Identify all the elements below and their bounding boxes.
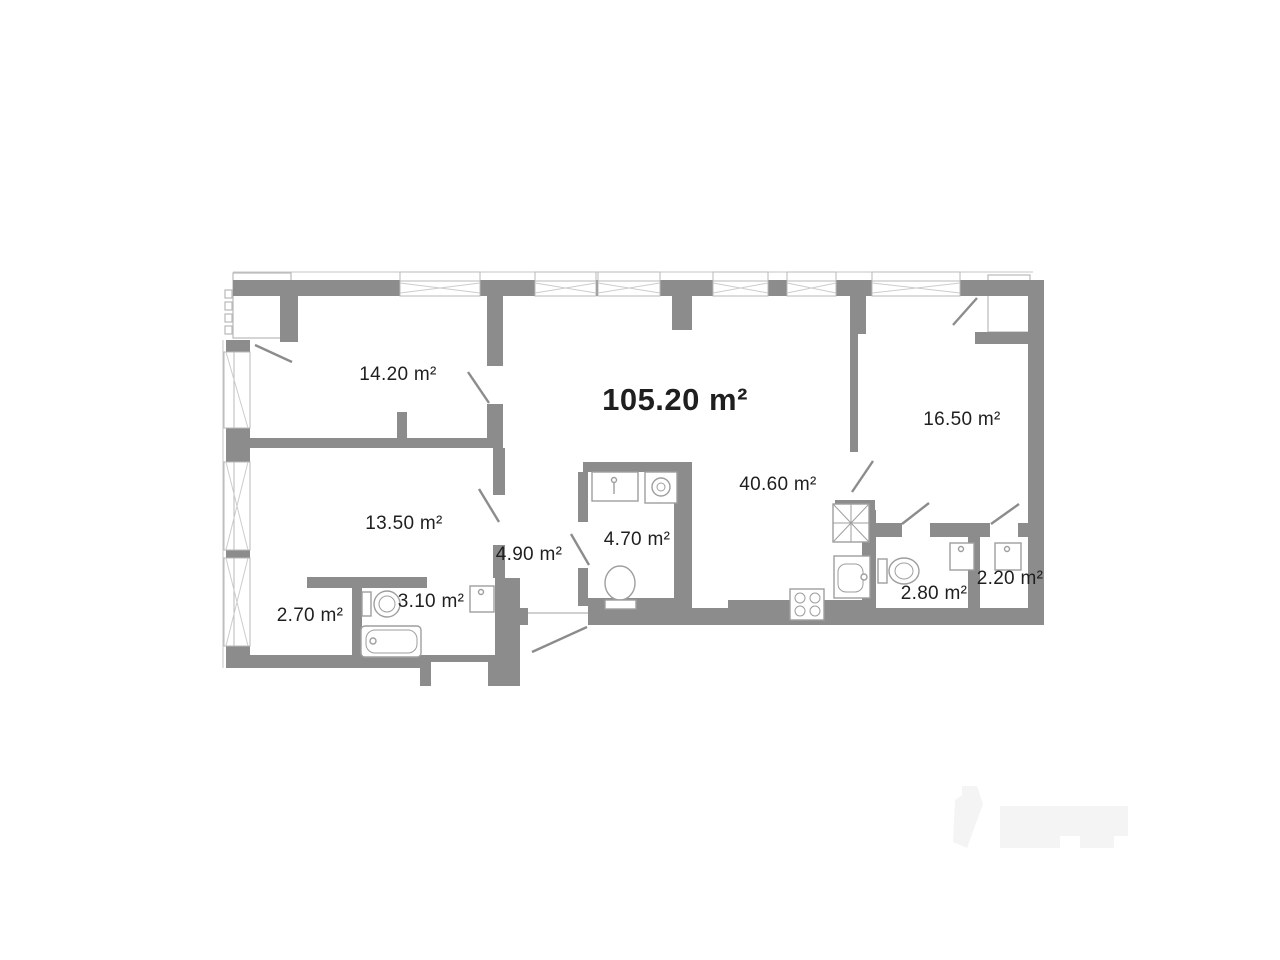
door-swing-icon-balcony-left	[255, 345, 292, 362]
door-swing-icon-room1	[468, 372, 489, 403]
wall-room3-right-a	[493, 448, 505, 495]
sink-icon	[470, 586, 494, 612]
toilet-icon	[605, 566, 636, 609]
floor-plan-drawing	[0, 0, 1280, 960]
windows-left	[224, 352, 250, 646]
door-swing-icon-entrance	[532, 627, 587, 652]
room-area-label-2-20: 2.20 m²	[977, 568, 1044, 590]
wall-bath-left-a	[578, 472, 588, 522]
room-area-label-40-60: 40.60 m²	[739, 474, 816, 496]
watermark-logo-dot	[962, 786, 976, 796]
wall-room2-left-a	[850, 296, 866, 334]
watermark-text-block	[1000, 806, 1128, 836]
sink-icon	[950, 543, 974, 570]
bathtub-icon	[361, 626, 421, 657]
wall-bottom-right	[520, 608, 1044, 625]
balcony-tick	[225, 314, 232, 322]
room-area-label-4-70: 4.70 m²	[604, 529, 671, 551]
floor-plan-canvas: 105.20 m² 14.20 m² 16.50 m² 40.60 m² 13.…	[0, 0, 1280, 960]
sink-icon	[592, 472, 638, 501]
wall-room1-right-a	[487, 296, 503, 366]
door-swing-icon-room2	[852, 461, 873, 492]
door-swing-icon-balcony-right	[953, 298, 977, 325]
window-icon	[400, 272, 480, 296]
washing-machine-icon	[645, 472, 677, 503]
toilet-icon	[362, 591, 400, 617]
watermark	[953, 786, 1128, 848]
sink-icon	[995, 543, 1021, 570]
wall-wc-top-c	[1018, 523, 1028, 537]
toilet-icon	[878, 558, 919, 584]
room-area-label-14-20: 14.20 m²	[359, 364, 436, 386]
wall-wc-top-b	[930, 523, 990, 537]
wall-wardrobe-top	[307, 577, 427, 588]
wall-bath-bottom	[583, 598, 692, 608]
total-area-label: 105.20 m²	[602, 382, 748, 418]
kitchen-sink-icon	[834, 556, 870, 598]
wall-bath-top	[583, 462, 690, 472]
room-area-label-13-50: 13.50 m²	[365, 513, 442, 535]
window-icon	[713, 272, 768, 296]
balcony-tick	[225, 302, 232, 310]
entrance-opening	[528, 606, 588, 627]
room-area-label-3-10: 3.10 m²	[398, 591, 465, 613]
window-icon	[872, 272, 960, 296]
room-area-label-16-50: 16.50 m²	[923, 409, 1000, 431]
room-area-label-4-90: 4.90 m²	[496, 544, 563, 566]
wall-room2-left-b	[850, 334, 858, 452]
wall-pillar-mid	[672, 296, 692, 330]
window-icon	[787, 272, 836, 296]
window-icon	[224, 352, 250, 428]
room-area-label-2-70: 2.70 m²	[277, 605, 344, 627]
window-icon	[224, 558, 250, 646]
window-icon	[224, 462, 250, 550]
window-icon	[598, 272, 660, 296]
vent-shaft-icon	[833, 504, 869, 542]
door-swing-icon-bathroom	[571, 534, 589, 565]
wall-stub	[397, 412, 407, 438]
wall-pillar-left	[280, 296, 298, 342]
watermark-text-block2	[1000, 836, 1060, 848]
balcony-tick	[225, 326, 232, 334]
door-swing-icon-wc	[902, 503, 929, 524]
stove-icon	[790, 589, 824, 620]
vestibule-notch	[431, 662, 488, 686]
watermark-text-block3	[1080, 836, 1114, 848]
wall-under-balcony	[975, 332, 1028, 344]
door-swing-icon-storage	[991, 504, 1019, 524]
room-area-label-2-80: 2.80 m²	[901, 583, 968, 605]
balcony-tick	[225, 290, 232, 298]
wall-room1-bottom	[248, 438, 490, 448]
wall-wc-top-a	[876, 523, 902, 537]
window-icon	[535, 272, 596, 296]
